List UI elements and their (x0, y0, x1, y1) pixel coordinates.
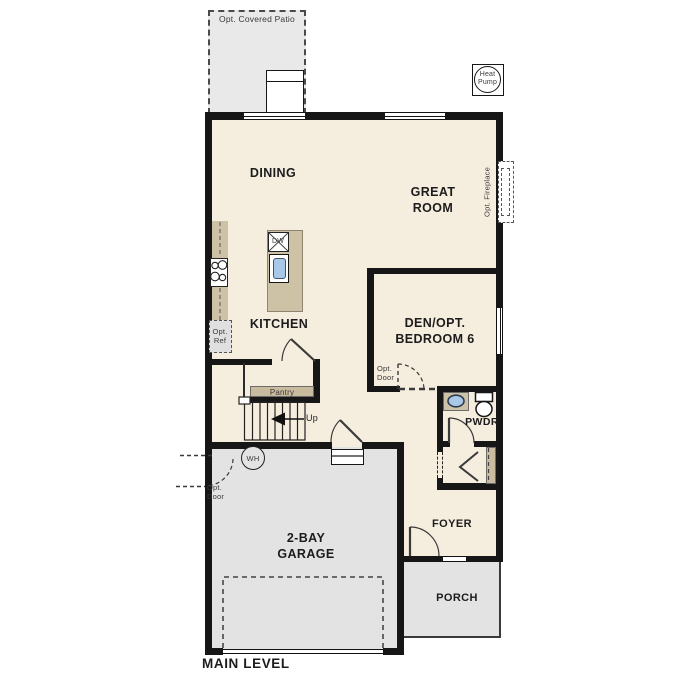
dining-label: DINING (250, 166, 296, 182)
main-level-title: MAIN LEVEL (202, 656, 290, 673)
den-opt-door (398, 364, 437, 389)
stairs-up-label: Up (306, 413, 318, 424)
closet-doors (460, 452, 478, 481)
floor-plan: Heat Pump Opt. Ref DW Pantry (0, 0, 687, 687)
cooktop-burners-icon (211, 261, 227, 281)
foyer-label: FOYER (432, 518, 472, 532)
kitchen-label: KITCHEN (250, 317, 308, 333)
garage-opt-door (176, 456, 233, 487)
den-opt-door-label: Opt. Door (377, 364, 394, 382)
garage-opt-door-label: Opt. Door (207, 483, 224, 501)
den-label: DEN/OPT. BEDROOM 6 (395, 316, 474, 347)
stairs-newel (239, 397, 250, 404)
garage-entry-door (331, 420, 364, 456)
plan-linework (0, 0, 687, 687)
stairs (245, 402, 306, 440)
covered-patio-label: Opt. Covered Patio (219, 14, 295, 24)
powder-sink-icon (448, 395, 464, 407)
kitchen-door (282, 339, 315, 361)
powder-label: PWDR (465, 416, 499, 429)
garage-label: 2-BAY GARAGE (277, 531, 334, 562)
porch-label: PORCH (436, 592, 478, 606)
dishwasher-x-icon (269, 233, 288, 251)
great-room-label: GREAT ROOM (411, 185, 456, 216)
toilet-icon (476, 393, 493, 417)
stairs-up-arrow (271, 413, 304, 426)
